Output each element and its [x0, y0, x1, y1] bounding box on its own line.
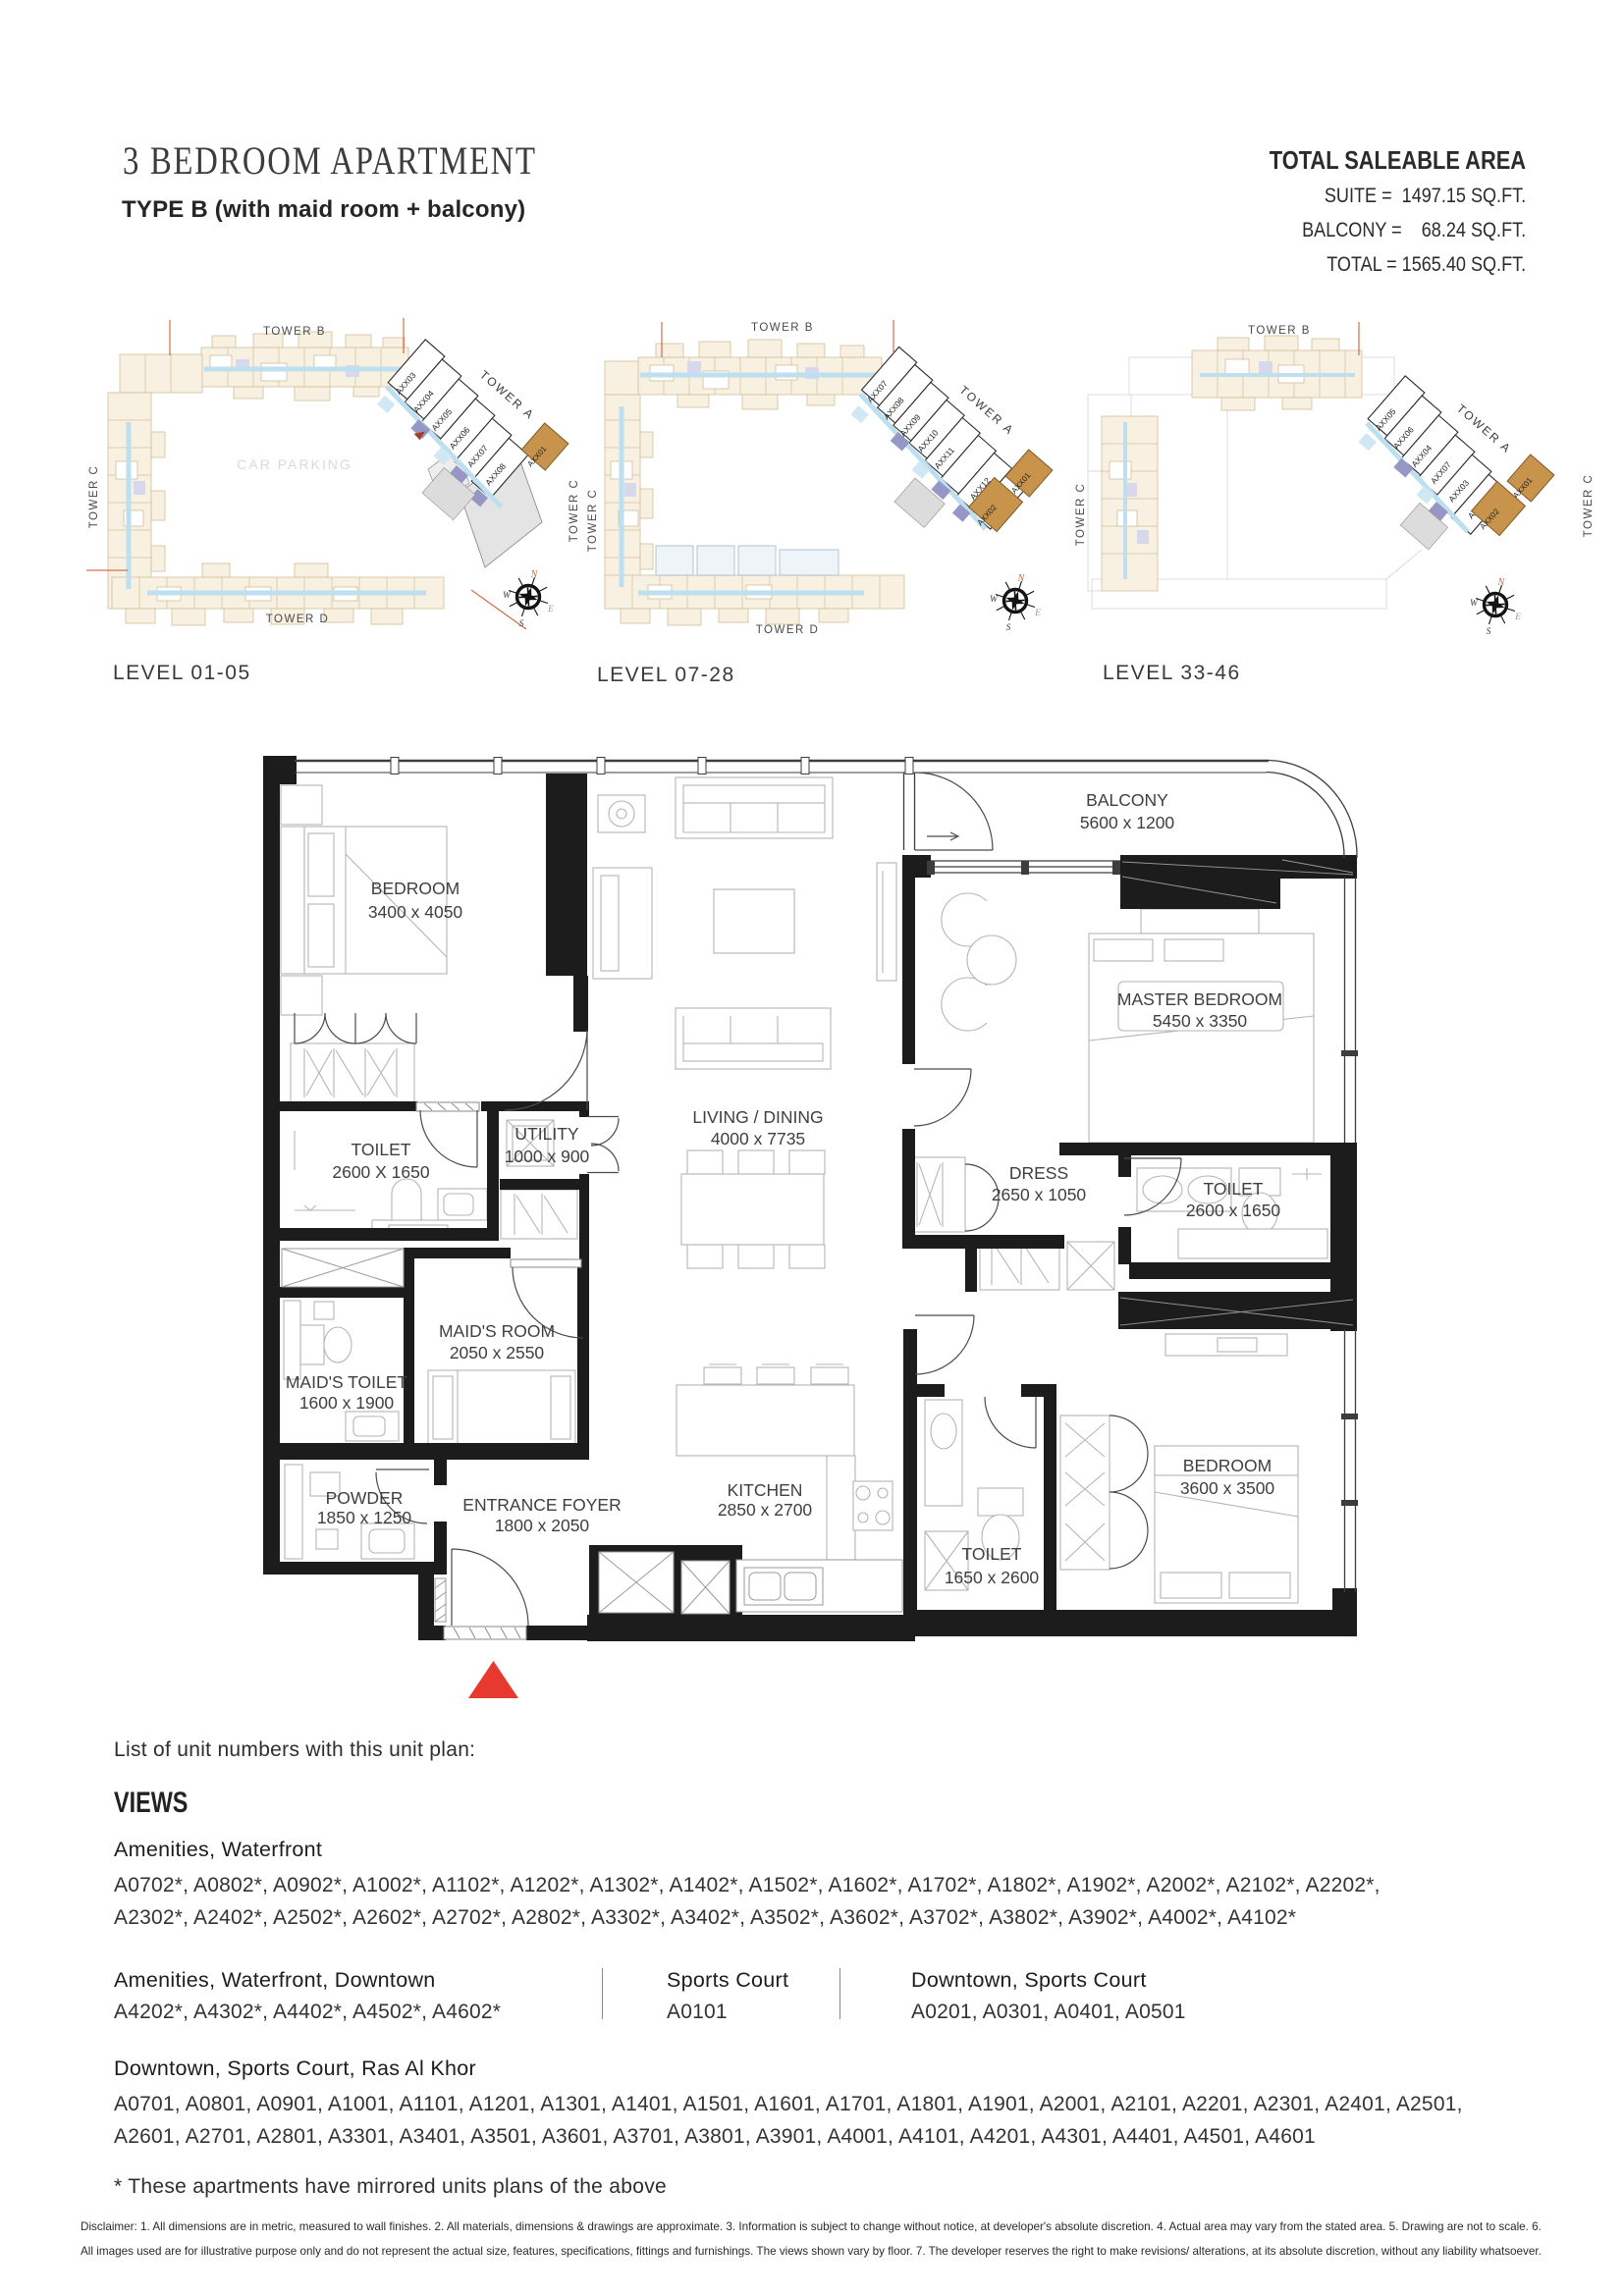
svg-text:5600 x 1200: 5600 x 1200: [1080, 813, 1175, 832]
svg-text:2650 x 1050: 2650 x 1050: [992, 1185, 1087, 1204]
svg-text:KITCHEN: KITCHEN: [728, 1480, 803, 1500]
svg-text:MAID'S ROOM: MAID'S ROOM: [439, 1321, 555, 1341]
svg-text:UTILITY: UTILITY: [514, 1124, 578, 1144]
svg-text:ENTRANCE FOYER: ENTRANCE FOYER: [462, 1495, 621, 1515]
svg-text:4000 x 7735: 4000 x 7735: [711, 1129, 805, 1148]
svg-text:BEDROOM: BEDROOM: [371, 879, 460, 898]
svg-text:1800 x 2050: 1800 x 2050: [495, 1516, 590, 1535]
svg-text:3600 x 3500: 3600 x 3500: [1180, 1478, 1275, 1498]
svg-text:1850 x 1250: 1850 x 1250: [317, 1508, 412, 1527]
svg-text:2600 X 1650: 2600 X 1650: [332, 1162, 430, 1182]
svg-text:MASTER BEDROOM: MASTER BEDROOM: [1117, 989, 1282, 1009]
svg-text:MAID'S TOILET: MAID'S TOILET: [286, 1372, 408, 1392]
svg-text:TOILET: TOILET: [352, 1140, 411, 1159]
svg-text:BALCONY: BALCONY: [1086, 790, 1168, 810]
svg-text:TOILET: TOILET: [962, 1544, 1022, 1564]
svg-text:POWDER: POWDER: [326, 1488, 404, 1508]
svg-text:5450 x 3350: 5450 x 3350: [1153, 1011, 1248, 1031]
svg-text:DRESS: DRESS: [1009, 1163, 1068, 1183]
svg-text:2600 x 1650: 2600 x 1650: [1186, 1201, 1281, 1220]
svg-text:2050 x 2550: 2050 x 2550: [450, 1343, 545, 1362]
svg-text:2850 x 2700: 2850 x 2700: [718, 1500, 813, 1520]
svg-text:1650 x 2600: 1650 x 2600: [945, 1568, 1040, 1587]
svg-text:1000 x 900: 1000 x 900: [505, 1147, 590, 1166]
svg-text:BEDROOM: BEDROOM: [1183, 1456, 1272, 1475]
svg-text:1600 x 1900: 1600 x 1900: [299, 1393, 395, 1413]
svg-text:LIVING / DINING: LIVING / DINING: [692, 1107, 823, 1127]
svg-text:3400 x 4050: 3400 x 4050: [368, 902, 463, 922]
svg-text:TOILET: TOILET: [1204, 1179, 1264, 1199]
